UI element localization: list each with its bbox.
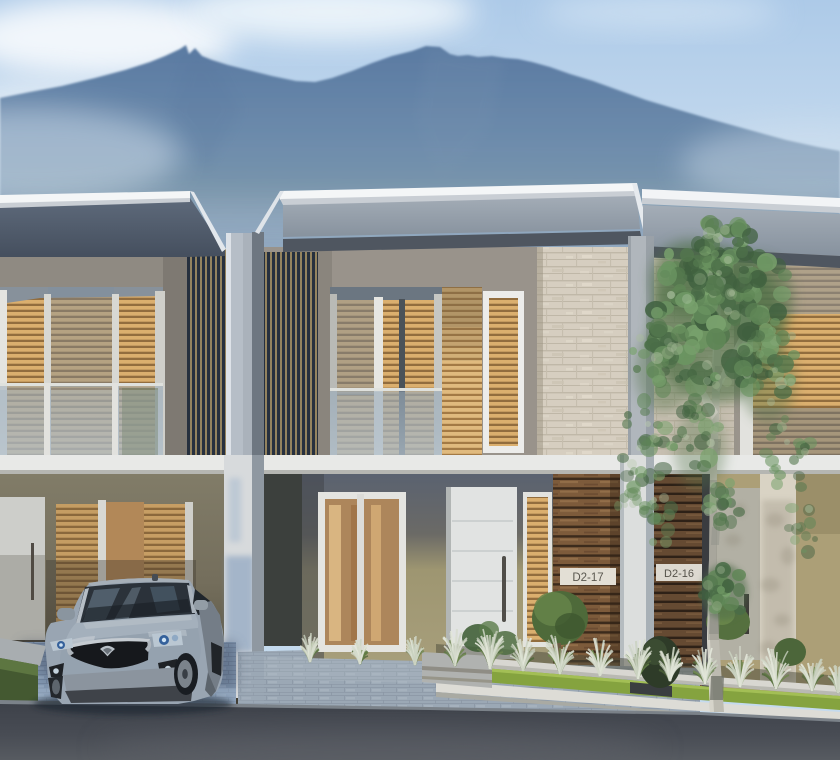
svg-text:D2-16: D2-16 (664, 568, 694, 580)
svg-text:D2-17: D2-17 (572, 572, 603, 584)
